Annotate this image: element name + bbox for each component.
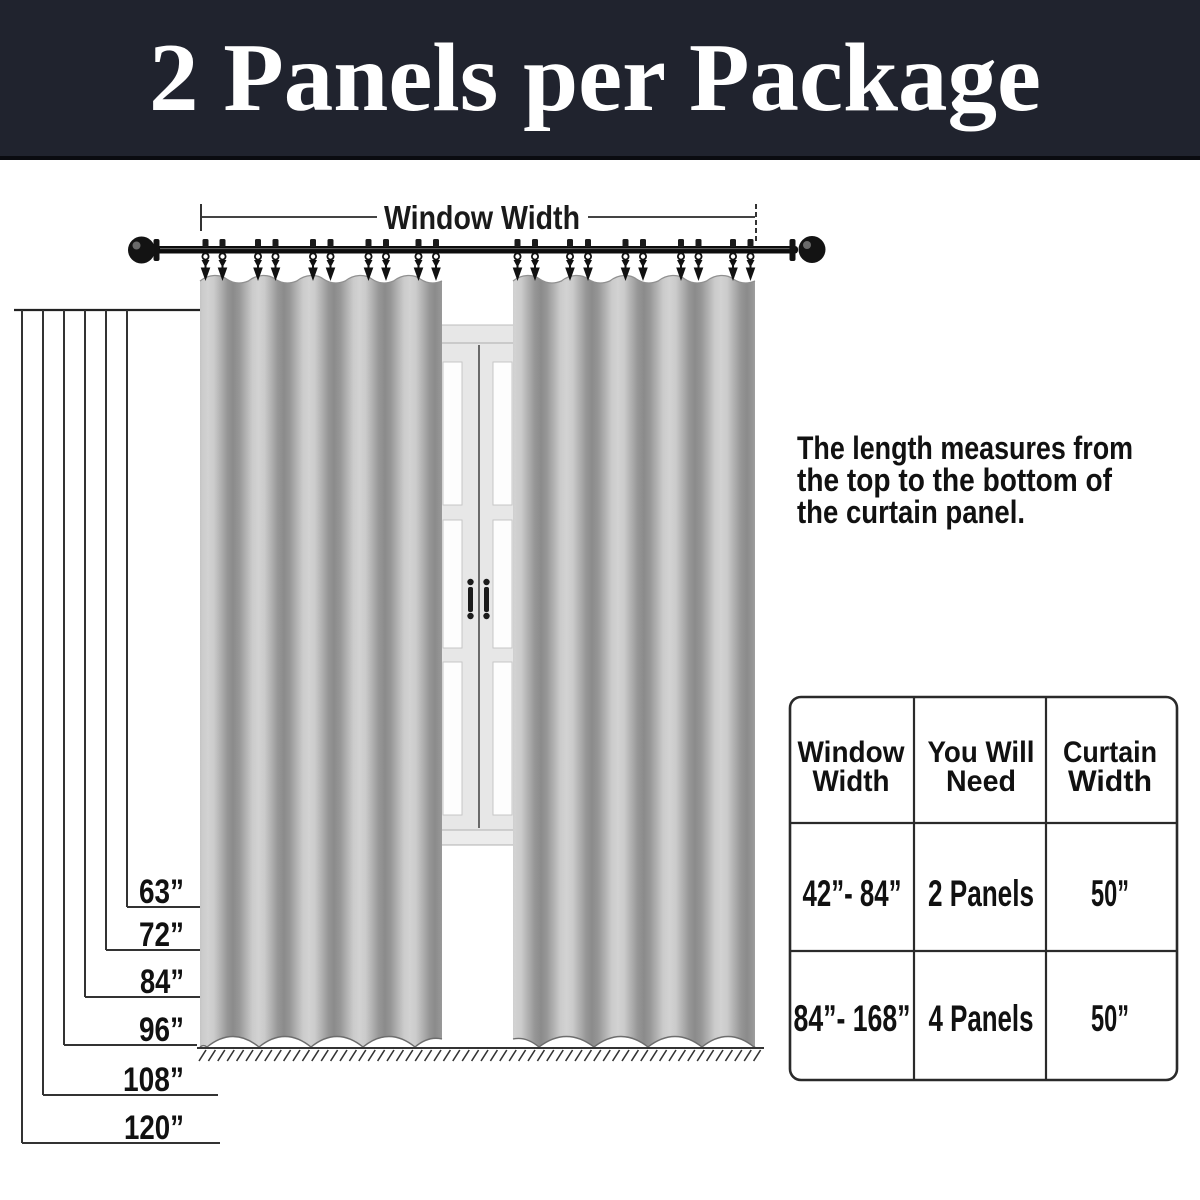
svg-text:Window Width: Window Width xyxy=(384,199,580,236)
svg-text:84”: 84” xyxy=(140,963,184,1001)
svg-text:Need: Need xyxy=(946,765,1016,798)
svg-text:Width: Width xyxy=(813,765,890,798)
svg-text:72”: 72” xyxy=(139,916,184,954)
svg-text:The length measures from: The length measures from xyxy=(797,430,1133,466)
svg-text:50”: 50” xyxy=(1091,873,1129,914)
svg-text:50”: 50” xyxy=(1091,998,1129,1039)
svg-text:84”- 168”: 84”- 168” xyxy=(794,998,911,1039)
svg-text:the top to the bottom of: the top to the bottom of xyxy=(797,462,1112,498)
svg-text:120”: 120” xyxy=(124,1109,184,1147)
svg-text:the curtain panel.: the curtain panel. xyxy=(797,494,1025,530)
svg-text:2 Panels per Package: 2 Panels per Package xyxy=(149,24,1041,131)
svg-text:4 Panels: 4 Panels xyxy=(929,998,1034,1039)
svg-text:96”: 96” xyxy=(139,1011,184,1049)
svg-text:108”: 108” xyxy=(123,1061,184,1099)
svg-text:63”: 63” xyxy=(139,873,184,911)
svg-text:42”- 84”: 42”- 84” xyxy=(803,873,902,914)
svg-text:Width: Width xyxy=(1068,765,1152,798)
svg-text:2 Panels: 2 Panels xyxy=(928,873,1034,914)
